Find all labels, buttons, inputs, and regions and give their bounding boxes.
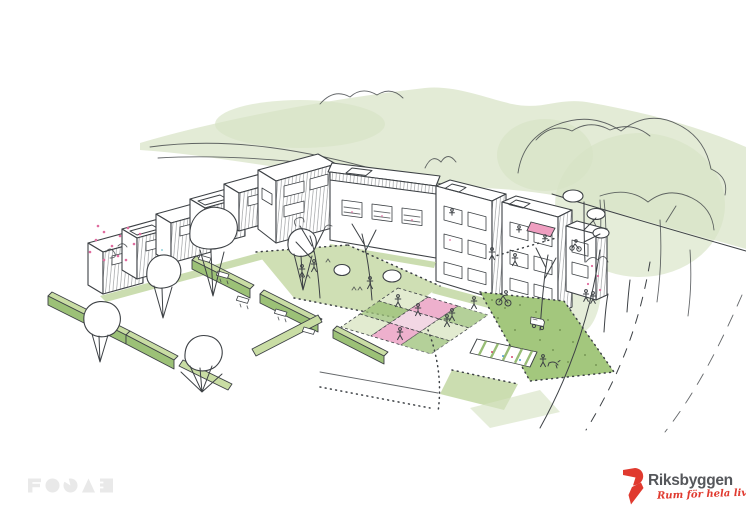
riksbyggen-logo: Riksbyggen Rum för hela livet bbox=[622, 468, 746, 506]
press-image: Riksbyggen Rum för hela livet bbox=[0, 0, 746, 528]
riksbyggen-wordmark: Riksbyggen bbox=[648, 472, 746, 489]
architectural-sketch bbox=[0, 0, 746, 528]
riksbyggen-icon bbox=[622, 468, 645, 506]
back-wing bbox=[328, 163, 440, 258]
fojab-wordmark-glyphs bbox=[28, 477, 114, 494]
riksbyggen-tagline: Rum för hela livet bbox=[657, 487, 746, 502]
fojab-logo bbox=[28, 477, 114, 494]
